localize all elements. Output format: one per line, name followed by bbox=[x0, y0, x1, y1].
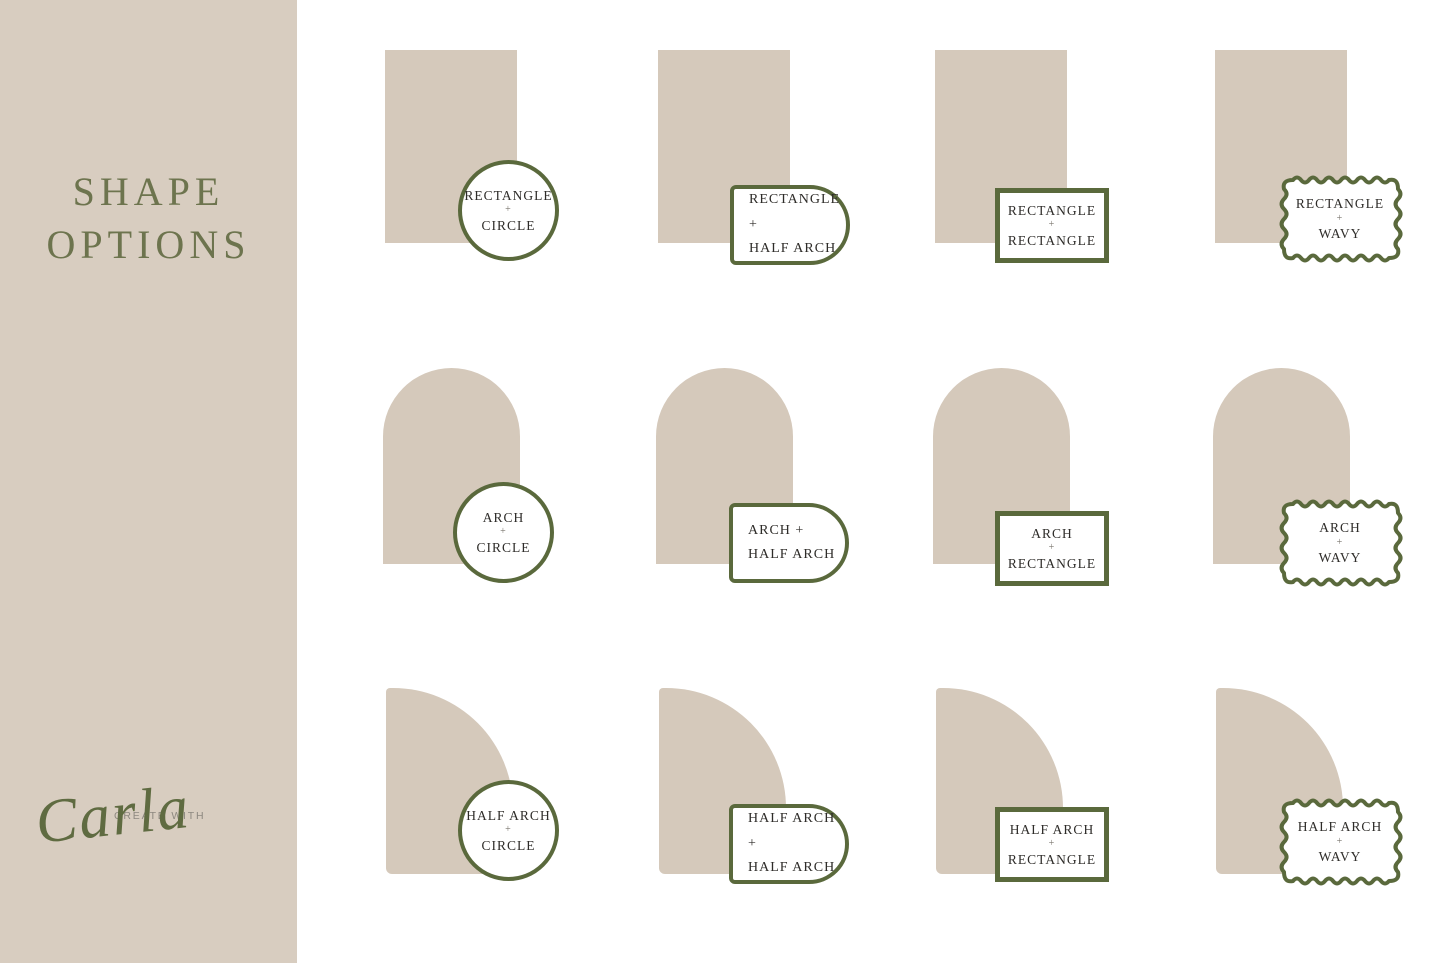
badge-label: ARCH bbox=[1319, 519, 1362, 537]
tile-half-arch-rectangle: HALF ARCH + RECTANGLE bbox=[936, 688, 1171, 933]
tile-rectangle-half-arch: RECTANGLE + HALF ARCH bbox=[658, 50, 893, 295]
badge-wavy: ARCH + WAVY bbox=[1277, 499, 1403, 587]
badge-label: RECTANGLE bbox=[1008, 555, 1096, 573]
tile-half-arch-wavy: HALF ARCH + WAVY bbox=[1216, 688, 1445, 933]
badge-label: HALF ARCH + bbox=[748, 807, 845, 856]
badge-label: ARCH bbox=[476, 509, 530, 527]
badge-label: ARCH + bbox=[748, 519, 835, 544]
page-title-line1: SHAPE bbox=[0, 166, 297, 219]
tile-half-arch-circle: HALF ARCH + CIRCLE bbox=[386, 688, 621, 933]
badge-circle: RECTANGLE + CIRCLE bbox=[458, 160, 559, 261]
badge-label: WAVY bbox=[1319, 549, 1362, 567]
brand-logo: CREATE WITH Carla bbox=[0, 778, 297, 918]
plus-sign: + bbox=[476, 526, 530, 539]
badge-label: WAVY bbox=[1296, 225, 1384, 243]
brand-logo-signature: Carla bbox=[32, 764, 268, 859]
tile-half-arch-half-arch: HALF ARCH + HALF ARCH bbox=[659, 688, 894, 933]
plus-sign: + bbox=[1008, 542, 1096, 555]
page-title-line2: OPTIONS bbox=[0, 219, 297, 272]
badge-wavy: RECTANGLE + WAVY bbox=[1277, 175, 1403, 263]
badge-rectangle: RECTANGLE + RECTANGLE bbox=[995, 188, 1109, 263]
page-title: SHAPE OPTIONS bbox=[0, 166, 297, 272]
plus-sign: + bbox=[1298, 836, 1382, 849]
badge-circle: ARCH + CIRCLE bbox=[453, 482, 554, 583]
plus-sign: + bbox=[464, 204, 552, 217]
badge-label: HALF ARCH bbox=[1298, 818, 1382, 836]
badge-label: RECTANGLE bbox=[1008, 851, 1096, 869]
badge-label: RECTANGLE bbox=[1296, 195, 1384, 213]
badge-label: HALF ARCH bbox=[748, 543, 835, 568]
tile-arch-half-arch: ARCH + HALF ARCH bbox=[656, 368, 891, 613]
badge-label: CIRCLE bbox=[466, 837, 550, 855]
badge-label: HALF ARCH bbox=[466, 807, 550, 825]
shape-options-sheet: SHAPE OPTIONS CREATE WITH Carla RECTANGL… bbox=[0, 0, 1445, 963]
sidebar: SHAPE OPTIONS CREATE WITH Carla bbox=[0, 0, 297, 963]
plus-sign: + bbox=[1319, 537, 1362, 550]
plus-sign: + bbox=[1008, 838, 1096, 851]
badge-label: RECTANGLE + bbox=[749, 188, 846, 237]
badge-label: HALF ARCH bbox=[1008, 821, 1096, 839]
tile-arch-circle: ARCH + CIRCLE bbox=[383, 368, 618, 613]
plus-sign: + bbox=[1296, 213, 1384, 226]
badge-label: ARCH bbox=[1008, 525, 1096, 543]
badge-label: CIRCLE bbox=[476, 539, 530, 557]
tile-rectangle-wavy: RECTANGLE + WAVY bbox=[1215, 50, 1445, 295]
badge-rectangle: HALF ARCH + RECTANGLE bbox=[995, 807, 1109, 882]
badge-half-arch: RECTANGLE + HALF ARCH bbox=[730, 185, 850, 265]
badge-rectangle: ARCH + RECTANGLE bbox=[995, 511, 1109, 586]
badge-label: HALF ARCH bbox=[748, 856, 845, 881]
badge-label: RECTANGLE bbox=[1008, 202, 1096, 220]
plus-sign: + bbox=[1008, 219, 1096, 232]
tile-rectangle-rectangle: RECTANGLE + RECTANGLE bbox=[935, 50, 1170, 295]
plus-sign: + bbox=[466, 824, 550, 837]
badge-label: RECTANGLE bbox=[1008, 232, 1096, 250]
tile-arch-wavy: ARCH + WAVY bbox=[1213, 368, 1445, 613]
badge-circle: HALF ARCH + CIRCLE bbox=[458, 780, 559, 881]
badge-half-arch: HALF ARCH + HALF ARCH bbox=[729, 804, 849, 884]
tile-arch-rectangle: ARCH + RECTANGLE bbox=[933, 368, 1168, 613]
tile-rectangle-circle: RECTANGLE + CIRCLE bbox=[385, 50, 620, 295]
badge-label: HALF ARCH bbox=[749, 237, 846, 262]
badge-wavy: HALF ARCH + WAVY bbox=[1277, 798, 1403, 886]
badge-half-arch: ARCH + HALF ARCH bbox=[729, 503, 849, 583]
badge-label: CIRCLE bbox=[464, 217, 552, 235]
badge-label: RECTANGLE bbox=[464, 187, 552, 205]
badge-label: WAVY bbox=[1298, 848, 1382, 866]
